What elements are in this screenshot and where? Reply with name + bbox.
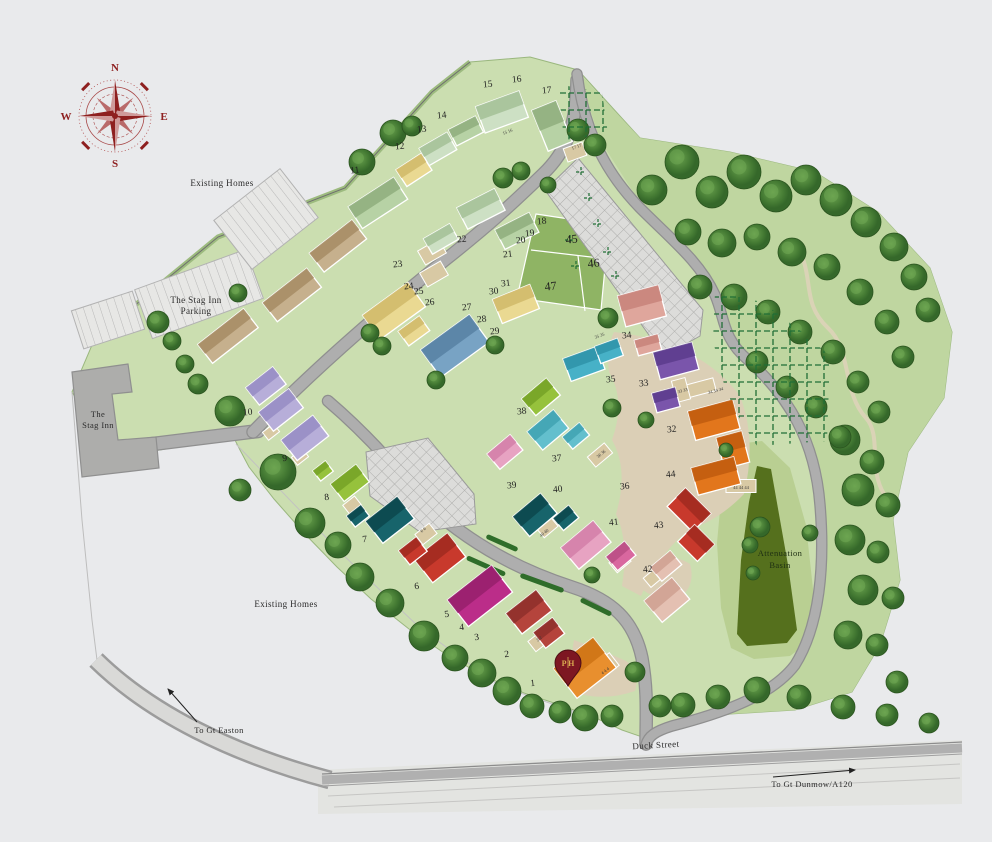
- tree-icon: [696, 176, 728, 208]
- tree-icon: [346, 563, 374, 591]
- garage-number: 44 44 44: [733, 485, 750, 490]
- plot-number-38: 38: [517, 407, 528, 418]
- plot-number-41: 41: [609, 518, 620, 529]
- plot-number-34: 34: [622, 331, 633, 342]
- tree-icon: [886, 671, 908, 693]
- plot-number-39: 39: [507, 481, 518, 492]
- tree-icon: [778, 238, 806, 266]
- tree-icon: [549, 701, 571, 723]
- tree-icon: [814, 254, 840, 280]
- tree-icon: [625, 662, 645, 682]
- tree-icon: [637, 175, 667, 205]
- tree-icon: [486, 336, 504, 354]
- tree-icon: [760, 180, 792, 212]
- tree-icon: [376, 589, 404, 617]
- tree-icon: [675, 219, 701, 245]
- tree-icon: [163, 332, 181, 350]
- tree-icon: [744, 677, 770, 703]
- tree-icon: [176, 355, 194, 373]
- site-plan-svg: Existing HomesThe Stag InnParkingTheStag…: [0, 0, 992, 842]
- tree-icon: [820, 184, 852, 216]
- tree-icon: [901, 264, 927, 290]
- tree-icon: [787, 685, 811, 709]
- plot-number-30: 30: [489, 287, 500, 298]
- tree-icon: [373, 337, 391, 355]
- tree-icon: [295, 508, 325, 538]
- tree-icon: [229, 479, 251, 501]
- tree-icon: [892, 346, 914, 368]
- tree-icon: [427, 371, 445, 389]
- site-plan: Existing HomesThe Stag InnParkingTheStag…: [0, 0, 992, 842]
- tree-icon: [719, 443, 733, 457]
- plot-number-17: 17: [542, 86, 553, 97]
- tree-icon: [880, 233, 908, 261]
- tree-icon: [215, 396, 245, 426]
- tree-icon: [229, 284, 247, 302]
- tree-icon: [325, 532, 351, 558]
- plot-number-28: 28: [477, 315, 488, 326]
- plot-number-37: 37: [552, 454, 563, 465]
- tree-icon: [442, 645, 468, 671]
- tree-icon: [727, 155, 761, 189]
- tree-icon: [829, 426, 851, 448]
- plot-number-31: 31: [501, 279, 512, 290]
- tree-icon: [848, 575, 878, 605]
- tree-icon: [512, 162, 530, 180]
- tree-icon: [520, 694, 544, 718]
- plot-number-13: 13: [417, 125, 428, 136]
- tree-icon: [847, 279, 873, 305]
- tree-icon: [584, 567, 600, 583]
- tree-icon: [876, 493, 900, 517]
- tree-icon: [603, 399, 621, 417]
- tree-icon: [493, 677, 521, 705]
- tree-icon: [860, 450, 884, 474]
- tree-icon: [851, 207, 881, 237]
- tree-icon: [831, 695, 855, 719]
- map-label-stag-inn-parking-2: Parking: [181, 306, 212, 316]
- tree-icon: [188, 374, 208, 394]
- tree-icon: [147, 311, 169, 333]
- tree-icon: [746, 566, 760, 580]
- plot-number-45: 45: [565, 231, 578, 246]
- tree-icon: [916, 298, 940, 322]
- plot-number-19: 19: [525, 229, 536, 240]
- plot-number-25: 25: [414, 287, 425, 298]
- plot-number-42: 42: [643, 565, 654, 576]
- tree-icon: [572, 705, 598, 731]
- tree-icon: [584, 134, 606, 156]
- tree-icon: [706, 685, 730, 709]
- tree-icon: [649, 695, 671, 717]
- tree-icon: [409, 621, 439, 651]
- tree-icon: [750, 517, 770, 537]
- tree-icon: [688, 275, 712, 299]
- plot-number-12: 12: [395, 142, 406, 153]
- tree-icon: [835, 525, 865, 555]
- tree-icon: [708, 229, 736, 257]
- tree-icon: [493, 168, 513, 188]
- map-label-stag-inn-1: The: [91, 409, 105, 419]
- tree-icon: [671, 693, 695, 717]
- plot-number-16: 16: [512, 75, 523, 86]
- plot-number-40: 40: [553, 485, 564, 496]
- tree-icon: [919, 713, 939, 733]
- tree-icon: [802, 525, 818, 541]
- compass-letter-E: E: [160, 111, 167, 123]
- plot-number-36: 36: [620, 482, 631, 493]
- map-label-attenuation-basin-1: Attenuation: [758, 548, 803, 558]
- map-label-to-gt-easton: To Gt Easton: [194, 725, 244, 735]
- tree-icon: [882, 587, 904, 609]
- plot-number-27: 27: [462, 303, 473, 314]
- tree-icon: [598, 308, 618, 328]
- plot-number-43: 43: [654, 521, 665, 532]
- plot-number-33: 33: [639, 379, 650, 390]
- tree-icon: [540, 177, 556, 193]
- tree-icon: [260, 454, 296, 490]
- tree-icon: [867, 541, 889, 563]
- tree-icon: [866, 634, 888, 656]
- tree-icon: [868, 401, 890, 423]
- pin-monogram: P H: [562, 659, 575, 668]
- tree-icon: [638, 412, 654, 428]
- plot-number-10: 10: [243, 408, 254, 419]
- plot-number-21: 21: [503, 250, 514, 261]
- plot-number-18: 18: [537, 217, 548, 228]
- tree-icon: [875, 310, 899, 334]
- compass-letter-S: S: [112, 158, 118, 170]
- tree-icon: [876, 704, 898, 726]
- plot-number-46: 46: [587, 255, 600, 270]
- plot-number-44: 44: [666, 470, 677, 481]
- tree-icon: [665, 145, 699, 179]
- tree-icon: [847, 371, 869, 393]
- map-label-attenuation-basin-2: Basin: [769, 560, 791, 570]
- tree-icon: [601, 705, 623, 727]
- plot-number-14: 14: [437, 111, 448, 122]
- tree-icon: [468, 659, 496, 687]
- plot-number-32: 32: [667, 425, 678, 436]
- map-label-existing-homes-top: Existing Homes: [190, 178, 253, 188]
- tree-icon: [834, 621, 862, 649]
- map-label-stag-inn-parking-1: The Stag Inn: [170, 295, 221, 305]
- compass-letter-W: W: [61, 111, 72, 123]
- tree-icon: [744, 224, 770, 250]
- plot-number-47: 47: [544, 278, 557, 293]
- plot-number-20: 20: [516, 236, 527, 247]
- tree-icon: [842, 474, 874, 506]
- map-label-stag-inn-2: Stag Inn: [82, 420, 114, 430]
- plot-number-29: 29: [490, 327, 501, 338]
- compass-letter-N: N: [111, 62, 119, 74]
- plot-number-22: 22: [457, 235, 468, 246]
- plot-number-15: 15: [483, 80, 494, 91]
- plot-number-23: 23: [393, 260, 404, 271]
- plot-number-35: 35: [606, 375, 617, 386]
- map-label-to-gt-dunmow: To Gt Dunmow/A120: [771, 779, 852, 789]
- plot-number-26: 26: [425, 298, 436, 309]
- tree-icon: [791, 165, 821, 195]
- map-label-existing-homes-bottom: Existing Homes: [254, 599, 317, 609]
- tree-icon: [742, 537, 758, 553]
- plot-number-11: 11: [350, 166, 360, 177]
